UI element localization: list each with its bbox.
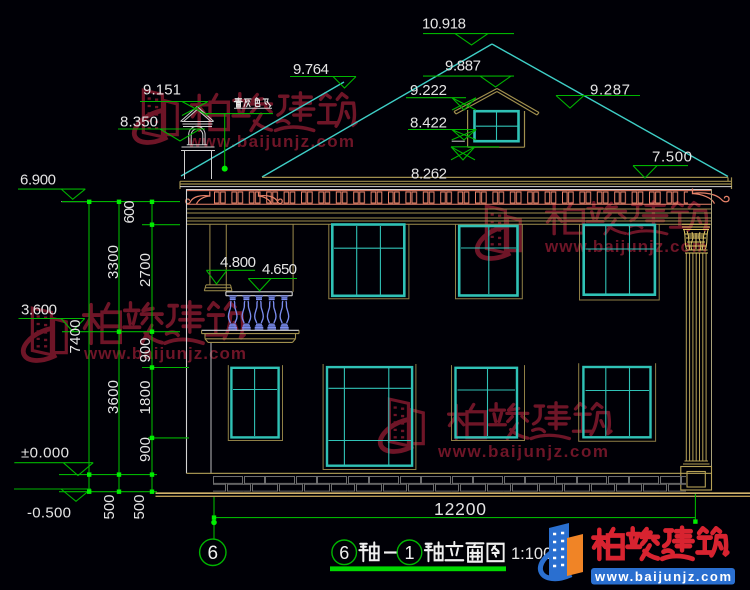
svg-text:9.887: 9.887 bbox=[445, 58, 481, 75]
svg-text:±0.000: ±0.000 bbox=[21, 445, 69, 462]
svg-text:4.800: 4.800 bbox=[220, 254, 256, 271]
svg-text:6.900: 6.900 bbox=[20, 172, 56, 189]
svg-text:10.918: 10.918 bbox=[422, 16, 466, 33]
svg-text:9.222: 9.222 bbox=[410, 82, 447, 99]
svg-text:1: 1 bbox=[404, 543, 414, 563]
svg-text:1800: 1800 bbox=[137, 381, 154, 415]
svg-text:900: 900 bbox=[137, 338, 154, 363]
svg-text:2700: 2700 bbox=[137, 253, 154, 287]
svg-text:500: 500 bbox=[101, 495, 118, 520]
svg-text:www.baijunjz.com: www.baijunjz.com bbox=[187, 132, 354, 151]
svg-text:4.650: 4.650 bbox=[262, 261, 297, 278]
svg-text:12200: 12200 bbox=[434, 499, 486, 519]
svg-text:7400: 7400 bbox=[67, 320, 84, 354]
svg-text:3300: 3300 bbox=[105, 245, 122, 279]
svg-text:www.baijunjz.com: www.baijunjz.com bbox=[544, 237, 707, 256]
svg-text:3.600: 3.600 bbox=[21, 302, 57, 319]
svg-text:3600: 3600 bbox=[105, 380, 122, 414]
svg-text:7.500: 7.500 bbox=[652, 149, 692, 166]
svg-text:8.422: 8.422 bbox=[410, 114, 447, 131]
svg-text:www.baijunjz.com: www.baijunjz.com bbox=[83, 344, 246, 363]
svg-text:6: 6 bbox=[208, 543, 219, 564]
svg-text:9.764: 9.764 bbox=[293, 61, 329, 78]
svg-text:6: 6 bbox=[339, 543, 349, 563]
svg-text:www.baijunjz.com: www.baijunjz.com bbox=[437, 442, 608, 461]
svg-text:500: 500 bbox=[131, 495, 148, 520]
svg-text:-0.500: -0.500 bbox=[27, 505, 71, 522]
svg-text:900: 900 bbox=[137, 437, 154, 462]
svg-text:8.262: 8.262 bbox=[411, 166, 447, 183]
svg-text:8.350: 8.350 bbox=[120, 114, 158, 131]
svg-text:600: 600 bbox=[121, 201, 138, 224]
svg-text:9.151: 9.151 bbox=[143, 82, 181, 99]
